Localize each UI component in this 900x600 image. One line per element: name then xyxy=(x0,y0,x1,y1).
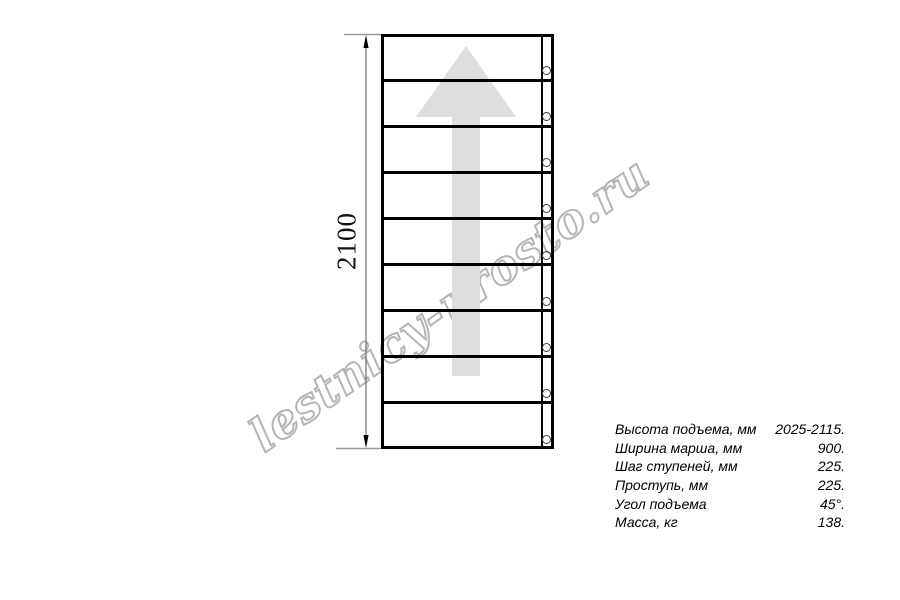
dimension-label: 2100 xyxy=(332,212,363,270)
spec-row: Масса, кг138. xyxy=(615,513,845,532)
spec-value: 225. xyxy=(818,457,845,476)
spec-label: Проступь, мм xyxy=(615,476,708,495)
spec-label: Высота подъема, мм xyxy=(615,420,757,439)
spec-value: 225. xyxy=(818,476,845,495)
spec-table: Высота подъема, мм2025-2115.Ширина марша… xyxy=(615,420,845,532)
spec-row: Ширина марша, мм900. xyxy=(615,439,845,458)
spec-row: Шаг ступеней, мм225. xyxy=(615,457,845,476)
spec-label: Угол подъема xyxy=(615,495,707,514)
spec-row: Угол подъема45°. xyxy=(615,495,845,514)
spec-value: 900. xyxy=(818,439,845,458)
spec-label: Масса, кг xyxy=(615,513,678,532)
drawing-canvas: lestnicy-prosto.ru 2100 Высота подъема, … xyxy=(0,0,900,600)
spec-label: Шаг ступеней, мм xyxy=(615,457,738,476)
spec-value: 45°. xyxy=(820,495,845,514)
spec-value: 138. xyxy=(818,513,845,532)
spec-value: 2025-2115. xyxy=(775,420,845,439)
spec-row: Высота подъема, мм2025-2115. xyxy=(615,420,845,439)
spec-label: Ширина марша, мм xyxy=(615,439,742,458)
spec-row: Проступь, мм225. xyxy=(615,476,845,495)
